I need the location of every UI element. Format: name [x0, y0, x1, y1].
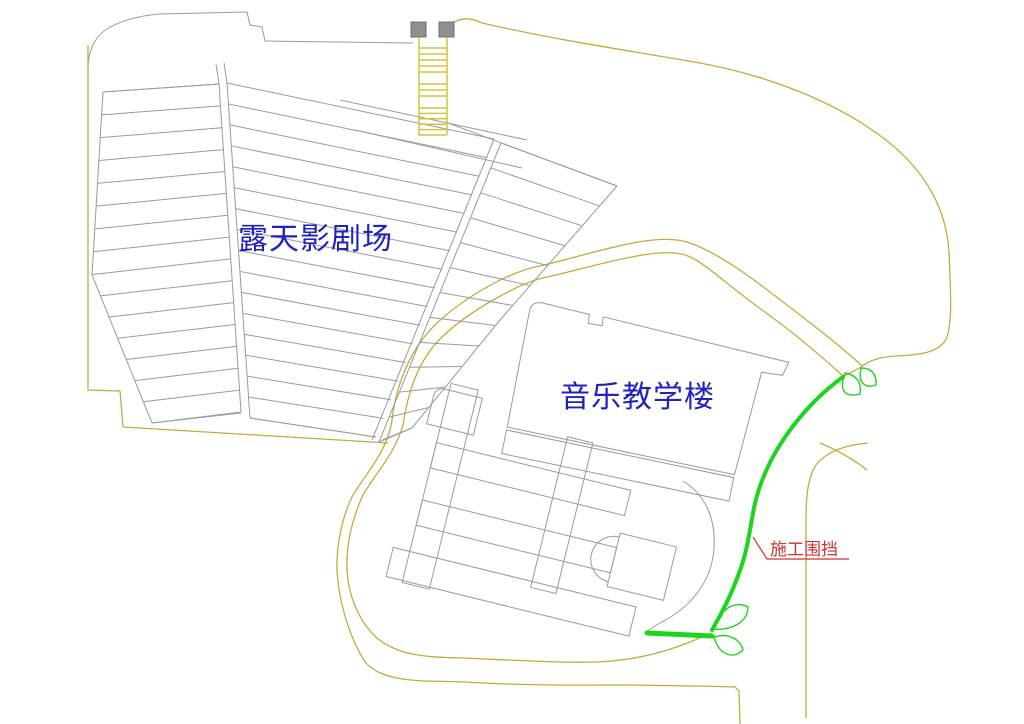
gate-symbol-bottom — [713, 605, 748, 655]
stairs — [411, 22, 454, 135]
building-wing-c — [386, 547, 636, 636]
curb-arc — [647, 481, 714, 631]
ring-road-outer — [337, 239, 862, 724]
building-corridor-1 — [402, 383, 478, 589]
fence-label: 施工围挡 — [770, 540, 838, 559]
fence-line — [712, 377, 843, 630]
seating-strip-row1 — [340, 100, 527, 140]
seating-rows-left — [92, 84, 241, 423]
stair-post-square-right — [439, 22, 454, 37]
theater-label: 露天影剧场 — [238, 223, 393, 256]
perimeter-curve — [448, 19, 951, 377]
gate-symbol-top — [843, 368, 877, 395]
fence-annotation: 施工围挡 — [753, 537, 849, 559]
building-round-corner-room — [427, 387, 483, 435]
boundary-left-yellow — [88, 45, 123, 427]
stair-post-square-left — [411, 22, 426, 37]
building-wing-b — [416, 500, 616, 573]
gate-leaf — [714, 636, 743, 655]
boundary-bottom-yellow — [123, 427, 388, 443]
site-plan-canvas: 露天影剧场 音乐教学楼 施工围挡 — [0, 0, 1024, 724]
fence-line-bottom — [647, 633, 712, 636]
boundary-top-line — [88, 12, 413, 70]
ring-road-inner — [347, 253, 843, 662]
building-wing-a — [430, 443, 630, 516]
aisle-right-line1 — [372, 139, 494, 440]
gate-leaf — [713, 605, 748, 630]
gate-leaf — [860, 368, 876, 386]
roads — [88, 19, 951, 724]
seating-edge-left — [92, 92, 152, 423]
music-building-label: 音乐教学楼 — [560, 381, 715, 414]
building-block-right — [607, 533, 676, 600]
site-boundary — [88, 12, 413, 70]
building-corridor-2 — [531, 437, 593, 594]
site-plan-page: 露天影剧场 音乐教学楼 施工围挡 — [0, 0, 1024, 724]
south-road-edge — [806, 443, 868, 718]
